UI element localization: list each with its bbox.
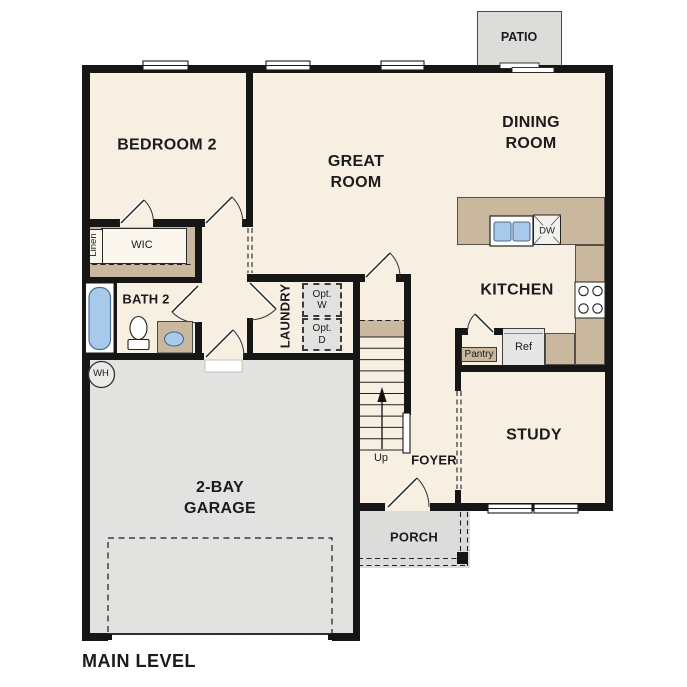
great-room-line1: GREAT bbox=[328, 151, 384, 172]
opt-washer-label-line2: W bbox=[317, 300, 326, 312]
floorplan-canvas: Opt. W Opt. D Ref Pantry bbox=[0, 0, 687, 687]
wall-study-left-b bbox=[455, 490, 461, 503]
garage-line2: GARAGE bbox=[184, 498, 256, 519]
wall-kitchen-study bbox=[455, 365, 605, 372]
wall-garage-bottom-a bbox=[82, 633, 108, 641]
room-label-great-room: GREAT ROOM bbox=[328, 151, 384, 193]
wall-wic-right bbox=[195, 227, 202, 277]
wall-laundry-top bbox=[247, 274, 365, 282]
wall-exterior-top bbox=[82, 65, 613, 73]
kitchen-counter-corner bbox=[545, 333, 575, 365]
wall-front-b bbox=[430, 503, 613, 511]
water-heater-label: WH bbox=[93, 368, 109, 380]
wall-pantry-top-a bbox=[462, 328, 468, 335]
wall-front-a bbox=[353, 503, 385, 511]
wall-exterior-right bbox=[605, 65, 613, 511]
refrigerator-label: Ref bbox=[515, 341, 532, 353]
room-label-bedroom2: BEDROOM 2 bbox=[117, 136, 217, 157]
wall-bedroom-bottom-a bbox=[82, 219, 120, 227]
wall-study-left-a bbox=[455, 372, 461, 391]
great-room-line2: ROOM bbox=[328, 172, 384, 193]
stair-landing-band bbox=[360, 320, 404, 337]
room-label-study: STUDY bbox=[506, 426, 562, 447]
opt-dryer-label-line1: Opt. bbox=[313, 323, 332, 335]
room-label-linen: Linen bbox=[88, 233, 100, 256]
room-label-laundry: LAUNDRY bbox=[278, 284, 295, 348]
wall-tub-divider bbox=[114, 283, 117, 353]
room-label-patio: PATIO bbox=[501, 29, 537, 45]
room-label-bath2: BATH 2 bbox=[122, 292, 169, 309]
wall-stair-right bbox=[404, 274, 411, 415]
dining-room-line2: ROOM bbox=[502, 133, 560, 154]
room-label-dining-room: DINING ROOM bbox=[502, 112, 560, 154]
wall-bedroom-bottom-b bbox=[153, 219, 205, 227]
wall-garage-right bbox=[353, 274, 360, 641]
room-label-foyer: FOYER bbox=[411, 453, 457, 470]
kitchen-counter-top bbox=[457, 197, 605, 245]
pantry-label-box: Pantry bbox=[461, 347, 497, 362]
room-label-porch: PORCH bbox=[390, 530, 438, 547]
opt-dryer-label-line2: D bbox=[318, 335, 325, 347]
wall-garage-top-a bbox=[82, 353, 204, 360]
wall-pantry-top-b bbox=[494, 328, 503, 335]
wall-garage-top-b bbox=[243, 353, 360, 360]
dishwasher-label: DW bbox=[538, 226, 556, 237]
room-label-garage: 2-BAY GARAGE bbox=[184, 477, 256, 519]
garage-line1: 2-BAY bbox=[184, 477, 256, 498]
wall-laundry-left-stub bbox=[247, 318, 253, 355]
wall-bath-right-stub bbox=[195, 322, 202, 355]
optional-washer-box: Opt. W bbox=[302, 283, 342, 317]
pantry-label: Pantry bbox=[465, 349, 494, 360]
refrigerator: Ref bbox=[502, 328, 545, 366]
optional-dryer-box: Opt. D bbox=[302, 318, 342, 351]
stairs-up-label: Up bbox=[374, 451, 388, 465]
wall-bath-top bbox=[82, 277, 202, 283]
room-label-wic: WIC bbox=[131, 238, 152, 252]
room-label-kitchen: KITCHEN bbox=[480, 281, 553, 302]
dining-room-line1: DINING bbox=[502, 112, 560, 133]
kitchen-counter-right bbox=[575, 245, 605, 365]
plan-title: MAIN LEVEL bbox=[82, 651, 196, 672]
wall-bedroom-right bbox=[246, 65, 253, 227]
wall-garage-bottom-b bbox=[332, 633, 358, 641]
wall-bedroom-bottom-c bbox=[242, 219, 253, 227]
opt-washer-label-line1: Opt. bbox=[313, 289, 332, 301]
